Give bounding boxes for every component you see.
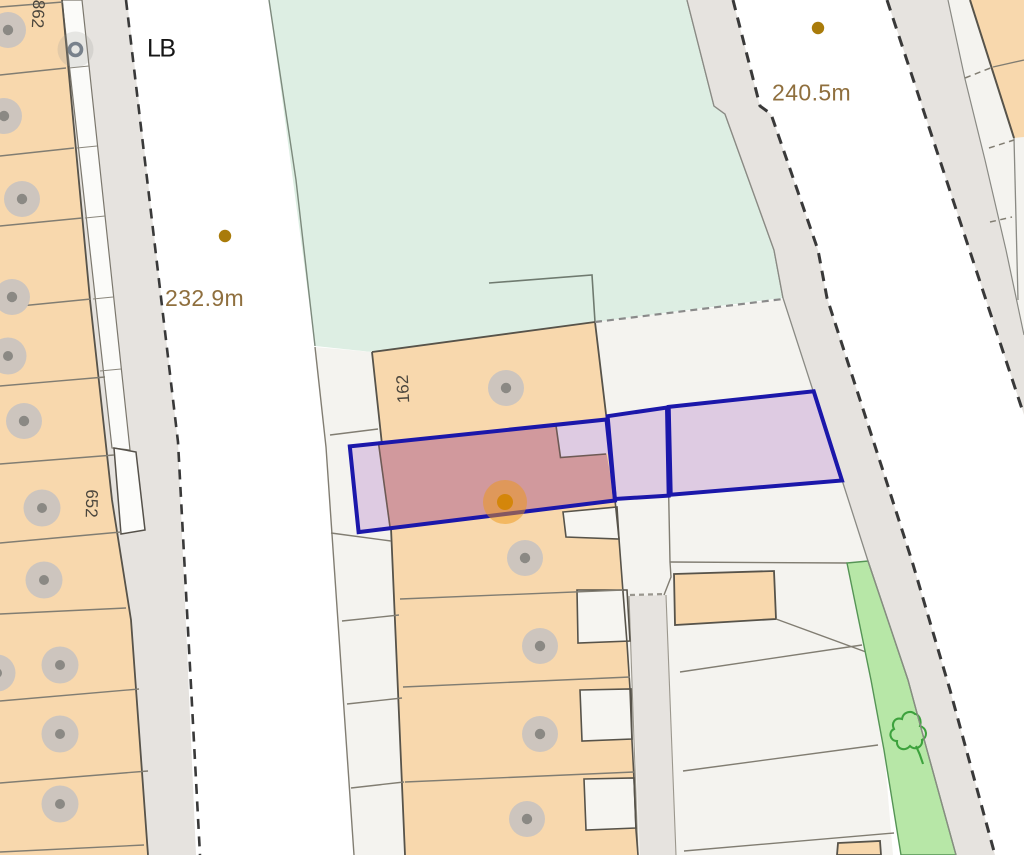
- svg-text:162: 162: [393, 374, 413, 403]
- svg-text:240.5m: 240.5m: [772, 80, 851, 106]
- svg-text:LB: LB: [147, 35, 175, 63]
- svg-text:232.9m: 232.9m: [165, 285, 244, 311]
- svg-text:862: 862: [28, 0, 48, 29]
- svg-text:652: 652: [82, 489, 101, 518]
